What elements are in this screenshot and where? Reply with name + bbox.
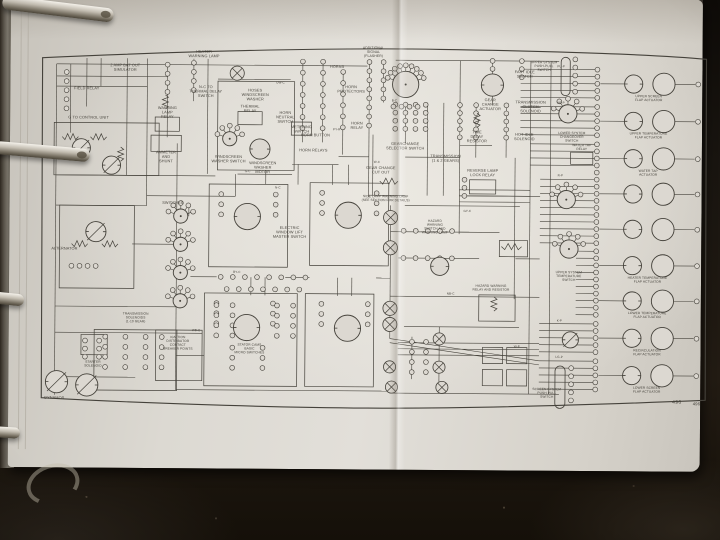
terminal	[567, 231, 572, 236]
terminal	[170, 288, 175, 293]
terminal	[273, 287, 278, 292]
component-label: HOSESWINDSCREENWASHER	[242, 88, 269, 101]
terminal	[458, 111, 463, 116]
terminal	[504, 103, 509, 108]
terminal	[300, 103, 305, 108]
terminal	[595, 81, 600, 86]
terminal	[214, 313, 219, 318]
terminal	[319, 322, 324, 327]
resistor-symbol	[491, 297, 497, 311]
terminal	[696, 119, 701, 124]
component-box	[482, 370, 502, 386]
component-label: TRANSMISSIONCLUTCHSOLENOID	[515, 100, 546, 113]
terminal	[595, 74, 600, 79]
terminal	[409, 339, 414, 344]
component-box	[238, 112, 262, 125]
terminal	[341, 69, 346, 74]
terminal	[462, 193, 467, 198]
terminal	[423, 127, 428, 132]
terminal	[103, 344, 108, 349]
terminal	[367, 60, 372, 65]
terminal	[300, 81, 305, 86]
terminal	[303, 275, 308, 280]
terminal	[171, 231, 176, 236]
terminal	[695, 192, 700, 197]
terminal	[230, 365, 235, 370]
figure-number: 496	[672, 400, 681, 406]
component-label: HOT IDLESOLENOID	[514, 133, 535, 142]
terminal	[564, 182, 569, 187]
resistor-symbol	[102, 241, 118, 247]
terminal	[85, 263, 90, 268]
terminal	[695, 157, 700, 162]
terminal	[519, 59, 524, 64]
terminal	[595, 95, 600, 100]
terminal	[143, 345, 148, 350]
actuator-symbol	[651, 290, 673, 312]
terminal	[409, 64, 414, 69]
terminal	[381, 69, 386, 74]
terminal	[365, 312, 370, 317]
photo-scene: UPPER SCREENFLAP ACTUATORUPPER TEMPERATU…	[0, 0, 720, 540]
terminal	[593, 380, 598, 385]
terminal	[77, 263, 82, 268]
terminal	[594, 205, 599, 210]
component-label: TRANSMISSIONSOLENOIDS(1-10 GEAR)	[123, 312, 149, 324]
terminal	[593, 329, 598, 334]
terminal	[230, 275, 235, 280]
terminal	[575, 234, 580, 239]
terminal	[274, 313, 279, 318]
terminal	[69, 263, 74, 268]
terminal	[504, 135, 509, 140]
terminal	[407, 104, 412, 109]
terminal	[123, 355, 128, 360]
terminal	[240, 132, 245, 137]
component-label: ELECTRICWINDOW LIFTMASTER SWITCH	[273, 226, 307, 239]
terminal	[123, 344, 128, 349]
terminal	[214, 333, 219, 338]
wire	[218, 79, 291, 80]
wire	[57, 64, 368, 66]
terminal	[123, 334, 128, 339]
rotary-center-dot	[229, 138, 231, 140]
terminal	[190, 237, 195, 242]
wire	[54, 64, 56, 395]
component-label: TRANSMISSION(1 & 2 GEARS)	[430, 154, 461, 163]
terminal	[64, 79, 69, 84]
terminal	[413, 118, 418, 123]
wire-bundle	[520, 121, 597, 122]
component-label: NB-C	[447, 292, 456, 296]
terminal	[462, 185, 467, 190]
terminal	[64, 88, 69, 93]
terminal	[594, 249, 599, 254]
component-label: GEARCHANGEACTUATOR	[479, 98, 501, 111]
terminal	[594, 277, 599, 282]
terminal	[414, 66, 419, 71]
terminal	[165, 89, 170, 94]
terminal	[424, 350, 429, 355]
terminal	[595, 142, 600, 147]
terminal	[319, 311, 324, 316]
component-label: G-C	[245, 169, 252, 173]
component-label: WINDSCREENWASHER SWITCH	[211, 155, 245, 164]
terminal	[191, 79, 196, 84]
terminal	[569, 382, 574, 387]
motor-symbol	[334, 315, 360, 341]
component-label: ALTERNATOR	[51, 246, 77, 250]
component-label: WATER TAPACTUATOR	[639, 169, 658, 177]
component-label: PU-P	[557, 64, 565, 68]
terminal	[423, 360, 428, 365]
terminal	[573, 185, 578, 190]
component-label: HAZARD WARNINGRELAY AND RESISTOR	[473, 284, 511, 292]
actuator-symbol	[653, 110, 675, 132]
terminal	[275, 303, 280, 308]
terminal	[159, 355, 164, 360]
terminal	[594, 284, 599, 289]
actuator-symbol	[652, 218, 674, 240]
terminal	[580, 106, 585, 111]
terminal	[103, 364, 108, 369]
terminal	[695, 264, 700, 269]
terminal	[595, 67, 600, 72]
motor-symbol	[234, 203, 260, 229]
component-label: REVERSE LAMPLOCK RELAY	[467, 169, 498, 178]
terminal	[594, 227, 599, 232]
terminal	[230, 333, 235, 338]
component-label: LOWER SYSTEMCHANGEOVERSWITCH	[558, 131, 585, 143]
terminal	[291, 275, 296, 280]
terminal	[423, 110, 428, 115]
terminal	[170, 259, 175, 264]
terminal	[297, 287, 302, 292]
wire	[57, 76, 168, 77]
component-label: WB-C	[192, 328, 201, 332]
terminal	[593, 366, 598, 371]
wire	[443, 103, 444, 196]
terminal	[490, 66, 495, 71]
terminal	[159, 335, 164, 340]
component-label: UPPER SCREENFLAP ACTUATOR	[635, 94, 663, 102]
motor-symbol	[481, 74, 503, 96]
terminal	[424, 339, 429, 344]
terminal	[321, 70, 326, 75]
terminal	[573, 81, 578, 86]
actuator-symbol	[651, 365, 673, 387]
terminal	[260, 355, 265, 360]
terminal	[224, 287, 229, 292]
terminal	[230, 313, 235, 318]
wire	[55, 332, 202, 333]
terminal	[274, 333, 279, 338]
terminal	[300, 70, 305, 75]
terminal	[248, 287, 253, 292]
manual-page: UPPER SCREENFLAP ACTUATORUPPER TEMPERATU…	[8, 0, 703, 472]
terminal	[185, 288, 190, 293]
component-label: G TO CONTROL UNIT	[68, 115, 109, 119]
terminal	[593, 312, 598, 317]
terminal	[166, 209, 171, 214]
terminal	[64, 106, 69, 111]
terminal	[227, 123, 232, 128]
wire-bundle	[398, 355, 539, 356]
component-label: W-P	[514, 345, 520, 349]
terminal	[165, 62, 170, 67]
terminal	[97, 354, 102, 359]
wire-bundle	[521, 97, 598, 98]
terminal	[123, 365, 128, 370]
terminal	[274, 323, 279, 328]
terminal	[230, 355, 235, 360]
terminal	[320, 115, 325, 120]
component-label: R-P	[558, 173, 564, 177]
terminal	[320, 211, 325, 216]
terminal	[413, 126, 418, 131]
component-box	[305, 294, 374, 387]
terminal	[594, 270, 599, 275]
terminal	[235, 126, 240, 131]
wire	[147, 58, 148, 205]
diagram-border	[40, 46, 707, 410]
terminal	[320, 93, 325, 98]
component-label: STARTERSOLENOID	[84, 360, 102, 368]
terminal	[215, 132, 220, 137]
terminal	[457, 127, 462, 132]
terminal	[423, 370, 428, 375]
terminal	[595, 119, 600, 124]
terminal	[595, 88, 600, 93]
terminal	[143, 365, 148, 370]
terminal	[594, 184, 599, 189]
rotary-center-dot	[568, 248, 570, 250]
page-edge-line	[25, 9, 29, 449]
terminal	[285, 287, 290, 292]
terminal	[261, 287, 266, 292]
terminal	[425, 256, 430, 261]
wire	[514, 158, 515, 299]
terminal	[97, 346, 102, 351]
component-label: LOWER SCREENFLAP ACTUATOR	[633, 386, 661, 394]
terminal	[191, 60, 196, 65]
terminal	[490, 58, 495, 63]
terminal	[593, 343, 598, 348]
component-label: HAZARDWARNINGSWITCH ANDWARNING LAMP	[422, 219, 448, 235]
component-box	[151, 135, 181, 151]
terminal	[367, 123, 372, 128]
terminal	[291, 313, 296, 318]
terminal	[409, 360, 414, 365]
component-label: FIELD RELAY	[74, 86, 100, 90]
terminal	[593, 373, 598, 378]
terminal	[64, 70, 69, 75]
terminal	[319, 301, 324, 306]
terminal	[462, 177, 467, 182]
component-label: 496	[693, 401, 701, 406]
component-box	[479, 295, 516, 321]
terminal	[143, 334, 148, 339]
terminal	[593, 321, 598, 326]
wire	[127, 58, 128, 175]
terminal	[143, 355, 148, 360]
component-label: SCREEN SYSTEMPUSH PULLSWITCH	[532, 387, 561, 399]
component-label: HORNS	[330, 65, 345, 69]
page-fold-crease	[389, 0, 408, 470]
component-label: IGNITIONDISTRIBUTORCONTACTBREAKER POINTS	[163, 335, 193, 351]
terminal	[191, 209, 196, 214]
motor-symbol	[233, 314, 259, 340]
terminal	[186, 259, 191, 264]
terminal	[569, 366, 574, 371]
terminal	[83, 346, 88, 351]
terminal	[64, 97, 69, 102]
terminal	[97, 338, 102, 343]
component-label: GY-C	[463, 209, 471, 213]
resistor-symbol	[90, 134, 106, 140]
terminal	[595, 133, 600, 138]
terminal	[594, 191, 599, 196]
terminal	[421, 76, 426, 81]
component-label: FAST IDLESWITCH	[515, 70, 535, 79]
terminal	[594, 170, 599, 175]
terminal	[573, 89, 578, 94]
component-label: HORNPROTECTORS	[337, 85, 365, 94]
terminal	[219, 212, 224, 217]
terminal	[409, 370, 414, 375]
terminal	[381, 96, 386, 101]
terminal	[419, 70, 424, 75]
terminal	[409, 349, 414, 354]
terminal	[695, 227, 700, 232]
wire	[57, 86, 148, 87]
terminal	[566, 96, 571, 101]
terminal	[694, 336, 699, 341]
terminal	[267, 275, 272, 280]
binder-ring-tip	[77, 151, 88, 159]
wiring-diagram-svg: UPPER SCREENFLAP ACTUATORUPPER TEMPERATU…	[34, 39, 713, 422]
terminal	[423, 102, 428, 107]
terminal	[365, 322, 370, 327]
rotary-center-dot	[567, 113, 569, 115]
terminal	[300, 59, 305, 64]
terminal	[504, 127, 509, 132]
terminal	[165, 71, 170, 76]
wire	[427, 103, 428, 196]
terminal	[413, 256, 418, 261]
terminal	[413, 110, 418, 115]
terminal	[159, 365, 164, 370]
terminal	[578, 192, 583, 197]
terminal	[367, 69, 372, 74]
terminal	[300, 92, 305, 97]
component-box	[469, 180, 495, 194]
rotary-center-dot	[565, 199, 567, 201]
component-label: UPPER TEMPERATUREFLAP ACTUATOR	[630, 131, 669, 139]
terminal	[593, 336, 598, 341]
terminal	[381, 60, 386, 65]
terminal	[449, 256, 454, 261]
wire-bundle	[398, 349, 539, 350]
component-label: HORN RELAYS	[299, 148, 328, 152]
terminal	[260, 366, 265, 371]
terminal	[694, 374, 699, 379]
component-label: HEATER TEMPERATUREFLAP ACTUATOR	[628, 276, 668, 284]
terminal	[320, 200, 325, 205]
terminal	[594, 177, 599, 182]
terminal	[166, 237, 171, 242]
rotary-center-dot	[180, 215, 182, 217]
terminal	[186, 231, 191, 236]
rotary-center-dot	[180, 243, 182, 245]
actuator-symbol	[653, 73, 675, 95]
terminal	[236, 287, 241, 292]
terminal	[178, 285, 183, 290]
terminal	[320, 81, 325, 86]
terminal	[219, 192, 224, 197]
terminal	[569, 374, 574, 379]
component-label: HORN BUTTON	[301, 133, 330, 137]
terminal	[291, 323, 296, 328]
terminal	[593, 305, 598, 310]
terminal	[191, 69, 196, 74]
terminal	[550, 192, 555, 197]
terminal	[594, 234, 599, 239]
component-label: LOWER TEMPERATUREFLAP ACTUATOR	[628, 311, 667, 319]
resistor-symbol	[62, 134, 78, 140]
terminal	[340, 125, 345, 130]
terminal	[458, 103, 463, 108]
terminal	[367, 114, 372, 119]
actuator-symbol	[652, 183, 674, 205]
wire	[176, 390, 390, 391]
page-edge-line	[18, 9, 22, 449]
component-label: K-P	[557, 319, 562, 323]
terminal	[321, 59, 326, 64]
terminal	[320, 104, 325, 109]
terminal	[367, 87, 372, 92]
binder-ring-icon	[0, 291, 25, 306]
component-label: HORNRELAY	[351, 121, 364, 130]
terminal	[255, 275, 260, 280]
terminal	[165, 294, 170, 299]
terminal	[555, 185, 560, 190]
terminal	[190, 294, 195, 299]
wiring-diagram-area: UPPER SCREENFLAP ACTUATORUPPER TEMPERATU…	[34, 39, 713, 422]
terminal	[593, 350, 598, 355]
terminal	[595, 105, 600, 110]
wire-bundle	[520, 128, 597, 129]
terminal	[367, 78, 372, 83]
terminal	[320, 126, 325, 131]
terminal	[190, 266, 195, 271]
terminal	[230, 303, 235, 308]
binder-ring-tip	[100, 10, 111, 18]
component-label: TIMEDELAYRESISTOR	[467, 130, 488, 143]
terminal	[218, 274, 223, 279]
component-label: RECIRCULATIONFLAP ACTUATOR	[633, 348, 661, 356]
terminal	[214, 303, 219, 308]
terminal	[594, 163, 599, 168]
terminal	[474, 111, 479, 116]
terminal	[569, 390, 574, 395]
component-box	[506, 370, 526, 386]
actuator-symbol	[652, 255, 674, 277]
terminal	[273, 192, 278, 197]
terminal	[573, 73, 578, 78]
terminal	[593, 359, 598, 364]
component-label: WATER TAPRELAY	[572, 143, 591, 151]
